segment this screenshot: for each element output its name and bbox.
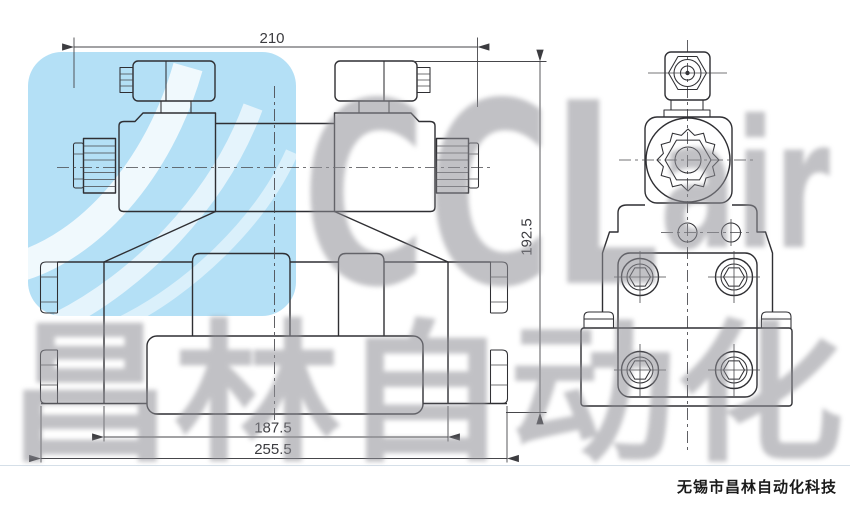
- bolt: [708, 344, 760, 396]
- front-view: [41, 61, 508, 421]
- dimension-body-width: 187.5: [104, 406, 448, 442]
- right-pad: [339, 254, 385, 337]
- dim-187-5: 187.5: [254, 420, 292, 437]
- left-tab: [584, 312, 614, 328]
- dim-255-5: 255.5: [254, 441, 292, 458]
- left-nut-cap: [74, 143, 84, 188]
- mounting-bolts: [614, 251, 760, 396]
- subplate: [147, 336, 423, 414]
- right-port-bosses: [491, 262, 508, 404]
- connector-neck: [671, 100, 703, 110]
- connector-flange: [664, 110, 710, 117]
- right-connector-box: [335, 61, 417, 101]
- left-nut-ribs: [84, 139, 116, 194]
- left-connector-box: [133, 61, 215, 101]
- right-solenoid-body: [335, 113, 436, 212]
- right-nut-ribs: [437, 139, 469, 194]
- valve-drawing: 210 192.5 187.5 255.5: [0, 0, 850, 509]
- body-transition: [104, 212, 448, 263]
- dimension-overall-height: 192.5: [413, 62, 547, 413]
- right-tab: [762, 312, 792, 328]
- bolt: [708, 251, 760, 303]
- left-solenoid-body: [119, 113, 216, 212]
- valve-base: [41, 262, 507, 404]
- side-view: [581, 40, 792, 450]
- left-port-bosses: [41, 262, 58, 404]
- bottom-divider: [0, 465, 850, 466]
- company-name: 无锡市昌林自动化科技: [677, 476, 837, 497]
- dim-192-5: 192.5: [519, 218, 536, 256]
- side-base-plate: [581, 328, 792, 406]
- right-nut-cap: [469, 143, 479, 188]
- dimensions: 210 192.5 187.5 255.5: [41, 30, 547, 463]
- dim-210: 210: [259, 30, 284, 47]
- bolt: [614, 251, 666, 303]
- bolt: [614, 344, 666, 396]
- drawing-page: 210 192.5 187.5 255.5 CCL air 昌林自动化: [0, 0, 850, 509]
- left-pad: [193, 254, 291, 337]
